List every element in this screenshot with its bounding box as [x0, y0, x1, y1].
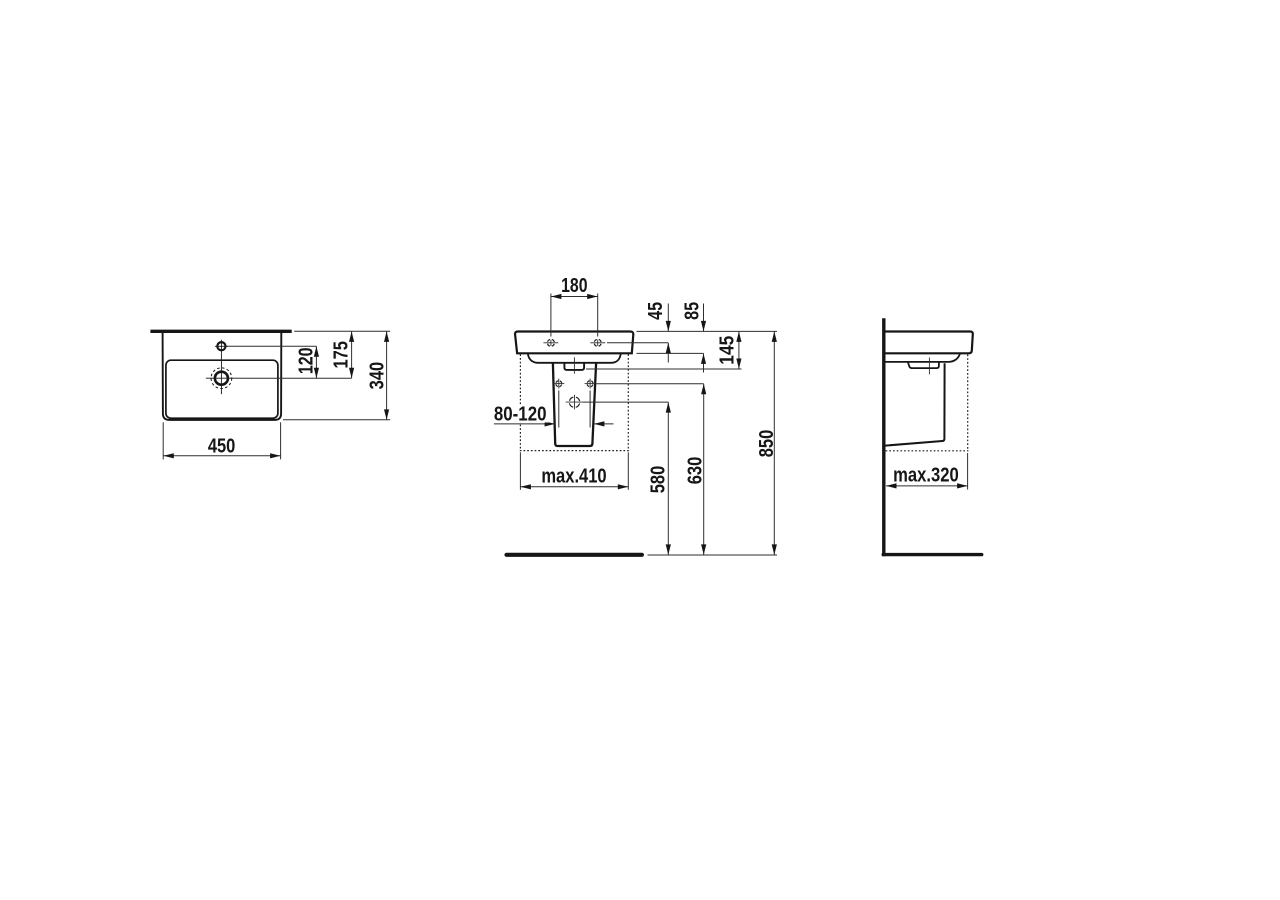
svg-text:80-120: 80-120	[494, 403, 547, 425]
svg-text:120: 120	[295, 347, 317, 374]
svg-text:450: 450	[208, 435, 236, 457]
svg-text:580: 580	[647, 466, 669, 494]
svg-text:max.410: max.410	[541, 465, 606, 487]
svg-text:145: 145	[716, 336, 738, 365]
svg-text:630: 630	[685, 457, 707, 485]
svg-text:850: 850	[756, 430, 778, 458]
svg-text:340: 340	[367, 362, 389, 390]
svg-text:175: 175	[330, 341, 352, 369]
svg-text:45: 45	[645, 302, 667, 320]
svg-text:85: 85	[681, 302, 703, 320]
svg-text:180: 180	[561, 275, 587, 297]
svg-text:max.320: max.320	[893, 464, 959, 486]
